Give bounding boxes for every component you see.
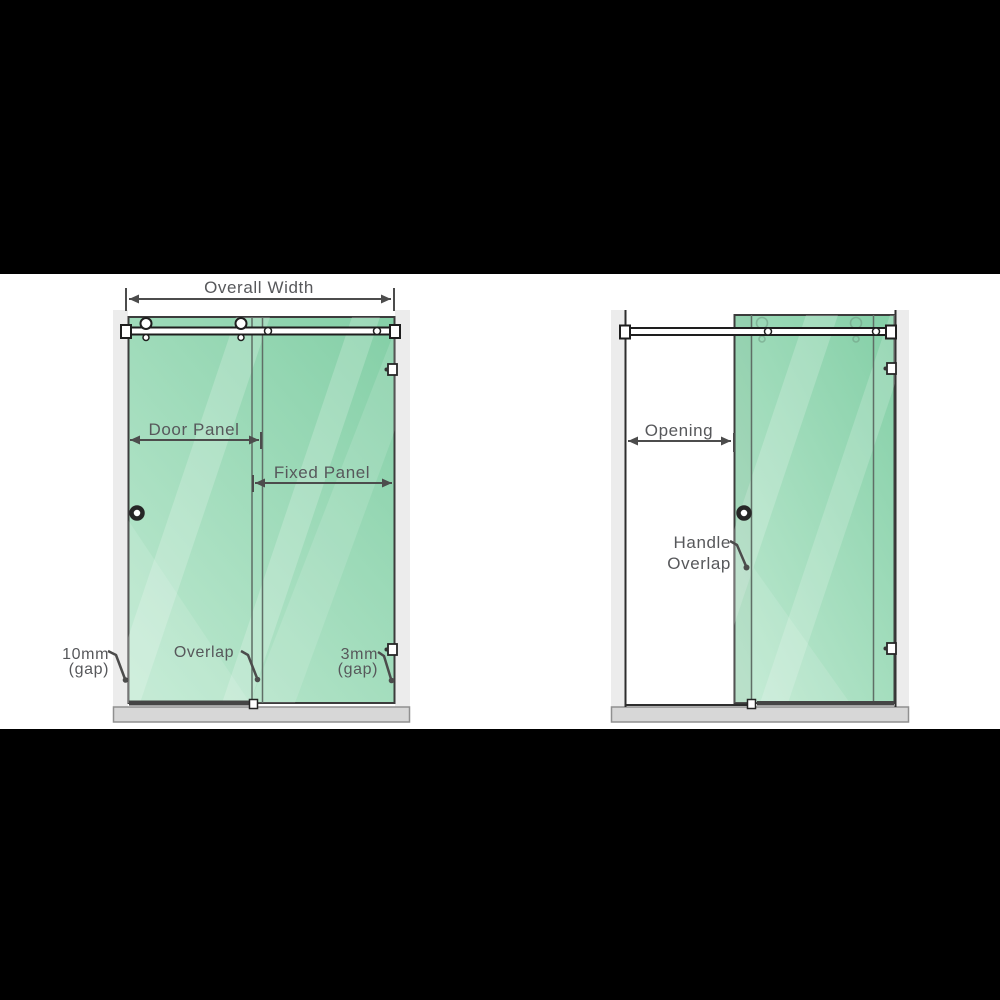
handle-overlap-line2: Overlap — [631, 553, 731, 574]
open-view-diagram — [611, 310, 918, 722]
roller-icon — [141, 318, 152, 329]
bottom-guide-icon — [250, 700, 258, 709]
rail-fixing-icon — [374, 328, 381, 335]
fixed-panel-label: Fixed Panel — [242, 464, 402, 481]
right-gap-value: 3mm — [298, 647, 378, 662]
wall-bracket-icon — [887, 363, 896, 374]
rail-end-cap-left — [121, 325, 131, 338]
bracket-screw-icon — [884, 647, 888, 651]
left-gap-unit: (gap) — [29, 662, 109, 677]
diagram-stage: Overall Width Door Panel Fixed Panel 10m… — [0, 0, 1000, 1000]
leader-dot — [123, 677, 129, 683]
wall-bracket-icon — [388, 644, 397, 655]
rail-end-cap-right — [390, 325, 400, 338]
right-gap-unit: (gap) — [298, 662, 378, 677]
roller-guide-icon — [143, 335, 149, 341]
roller-icon — [236, 318, 247, 329]
door-handle-knob-icon — [739, 508, 750, 519]
top-rail — [126, 328, 395, 335]
handle-overlap-label: Handle Overlap — [631, 532, 731, 574]
wall-bracket-icon — [388, 364, 397, 375]
opening-label: Opening — [619, 422, 739, 439]
rail-end-cap-right — [886, 326, 896, 339]
bottom-guide-icon — [748, 700, 756, 709]
bracket-screw-icon — [884, 367, 888, 371]
bracket-screw-icon — [385, 368, 389, 372]
handle-overlap-line1: Handle — [631, 532, 731, 553]
rail-fixing-icon — [765, 328, 772, 335]
left-gap-value: 10mm — [29, 647, 109, 662]
door-bottom-seal — [757, 701, 894, 706]
wall-strip-right — [895, 310, 909, 707]
rail-end-cap-left — [620, 326, 630, 339]
leader-dot — [744, 565, 750, 571]
right-gap-label: 3mm (gap) — [298, 647, 378, 677]
leader-dot — [255, 677, 261, 683]
roller-guide-icon — [238, 335, 244, 341]
shower-tray — [114, 707, 410, 722]
wall-bracket-icon — [887, 643, 896, 654]
shower-tray — [612, 707, 909, 722]
overlap-label: Overlap — [144, 645, 264, 660]
wall-strip-left — [611, 310, 625, 707]
left-gap-label: 10mm (gap) — [29, 647, 109, 677]
wall-strip-left — [113, 310, 128, 707]
door-panel-label: Door Panel — [119, 421, 269, 438]
rail-fixing-icon — [265, 328, 272, 335]
door-bottom-seal — [129, 701, 251, 706]
leader-dot — [389, 678, 395, 684]
bracket-screw-icon — [385, 648, 389, 652]
diagram-linework — [0, 0, 1000, 1000]
overall-width-label: Overall Width — [159, 279, 359, 296]
rail-fixing-icon — [873, 328, 880, 335]
top-rail — [625, 328, 895, 335]
door-handle-knob-icon — [132, 508, 143, 519]
